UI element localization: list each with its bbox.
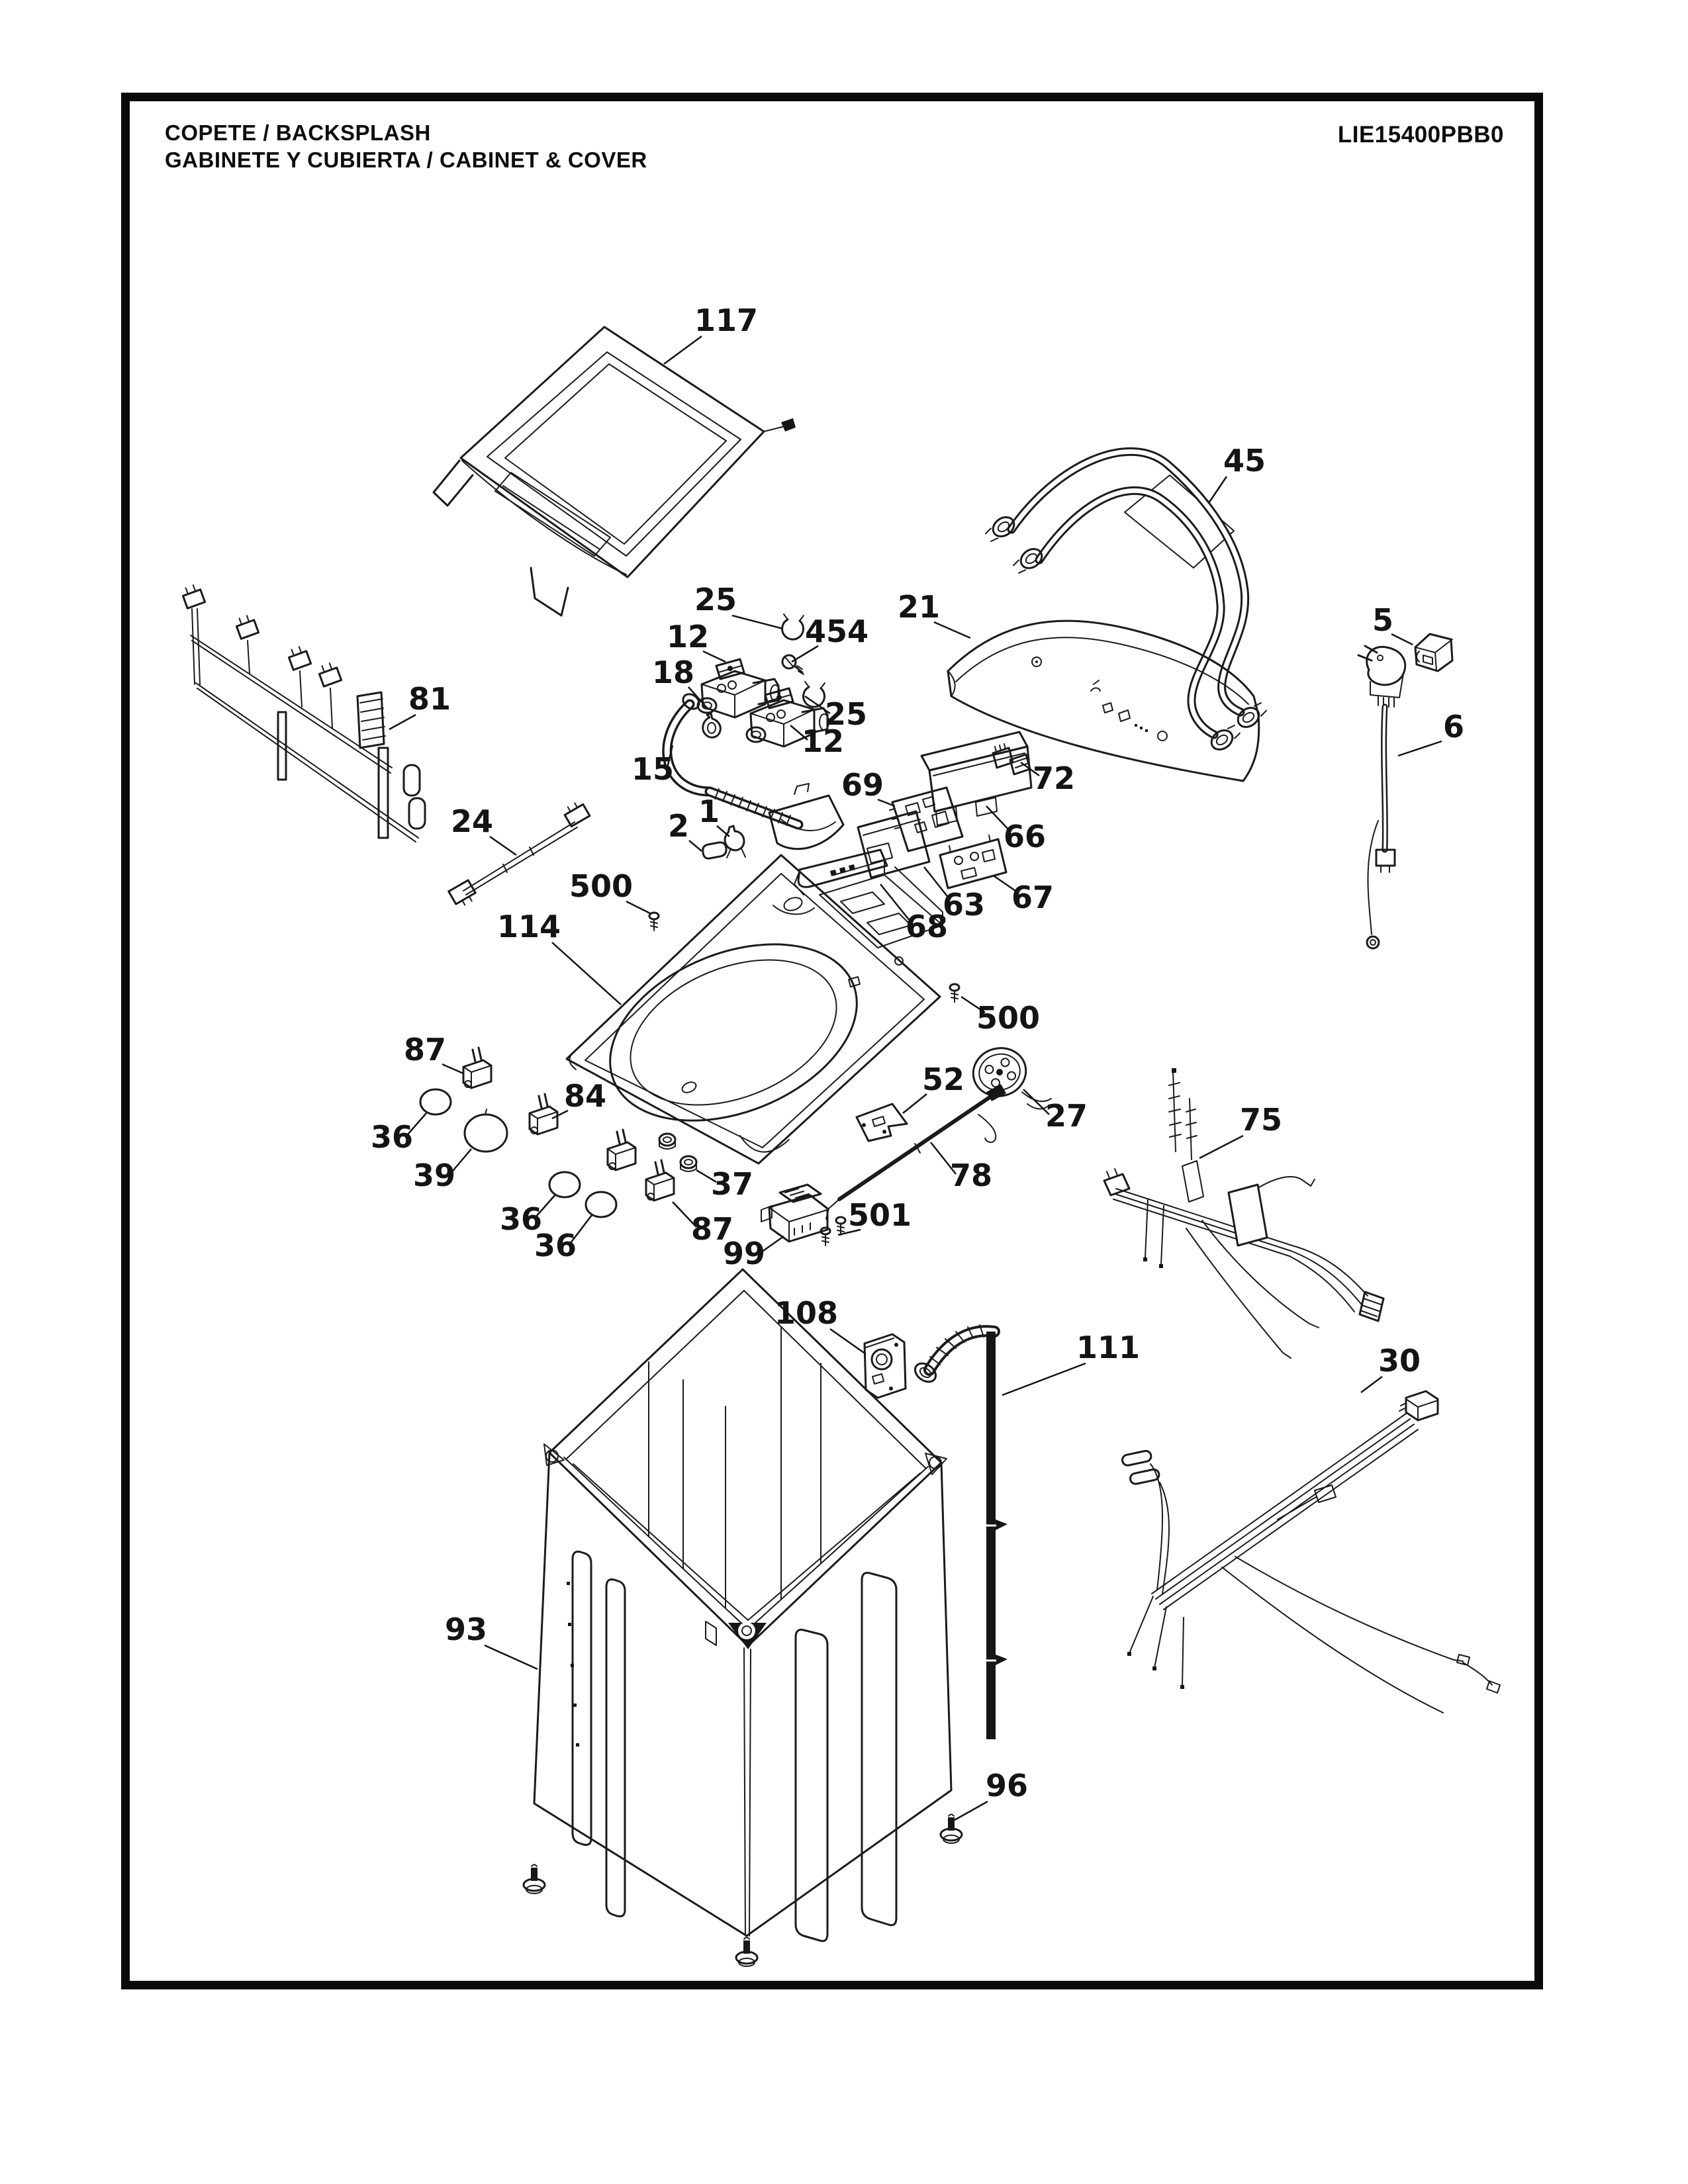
callout-72: 72 [1033,760,1075,796]
callout-12: 12 [802,723,844,759]
callout-1: 1 [698,794,720,829]
callout-454: 454 [805,614,868,649]
callout-36: 36 [371,1119,413,1155]
leader-line-75 [1199,1136,1243,1158]
callout-117: 117 [694,302,758,338]
callout-108: 108 [774,1295,838,1331]
callout-2: 2 [668,808,689,844]
leader-line-96 [955,1801,988,1820]
callout-93: 93 [445,1612,487,1647]
callout-25: 25 [694,582,737,617]
leader-line-111 [1002,1363,1086,1395]
callout-501: 501 [848,1197,912,1233]
part-93-cabinet [534,1269,951,1941]
leader-line-114 [552,942,621,1005]
callout-6: 6 [1443,709,1464,745]
leader-line-6 [1398,741,1442,756]
part-6-power-cord [1358,646,1405,948]
part-switch-mid [608,1130,635,1170]
part-30-harness [1121,1391,1500,1713]
callout-15: 15 [632,751,674,787]
callout-12: 12 [667,619,709,655]
leader-line-2 [689,841,702,851]
callout-81: 81 [408,681,451,717]
part-454-screw [782,655,804,674]
callout-5: 5 [1372,602,1393,638]
leader-line-81 [389,715,416,729]
part-12-valve-a [698,659,780,717]
leader-line-45 [1209,477,1227,503]
callout-21: 21 [898,589,940,625]
part-108-bracket [865,1334,906,1398]
callout-37: 37 [711,1166,753,1202]
leader-line-108 [830,1329,866,1354]
callout-500: 500 [569,868,633,904]
part-27-timer-dial [968,1042,1051,1109]
callout-68: 68 [906,909,948,944]
part-117-lid [434,327,796,615]
part-87-switch-a [463,1048,491,1088]
leader-line-5 [1391,634,1413,645]
callout-39: 39 [413,1158,455,1193]
part-66-bracket [921,732,1031,825]
callout-30: 30 [1378,1343,1421,1379]
callout-78: 78 [950,1158,992,1193]
callout-114: 114 [497,909,561,944]
part-37-bushings [659,1134,696,1171]
diagram-page: COPETE / BACKSPLASH GABINETE Y CUBIERTA … [0,0,1688,2184]
part-99-pressure-switch [761,1185,827,1242]
leader-line-93 [485,1645,538,1669]
part-39-ring [465,1109,507,1152]
part-45-fill-hoses [984,451,1269,753]
callout-52: 52 [922,1062,964,1097]
part-2-pad [703,842,726,858]
callout-36: 36 [534,1228,577,1263]
part-1-clip [725,826,745,858]
callout-67: 67 [1011,880,1054,915]
callout-96: 96 [986,1768,1028,1803]
part-67-power-board [940,835,1006,888]
callout-111: 111 [1076,1330,1140,1365]
callout-84: 84 [564,1078,606,1114]
part-81-harness [181,583,425,842]
part-87-switch-b [646,1160,674,1201]
callout-27: 27 [1045,1098,1088,1134]
leader-line-24 [490,837,516,855]
part-18-clip [703,713,721,737]
part-52-bracket [857,1104,907,1141]
callout-18: 18 [652,655,694,690]
callout-500: 500 [976,1000,1040,1036]
leader-line-30 [1361,1377,1382,1392]
part-5-switch [1415,634,1452,671]
callout-63: 63 [943,887,985,923]
callout-69: 69 [841,767,884,803]
callout-87: 87 [404,1032,446,1068]
part-69-control-board [890,788,962,851]
callout-45: 45 [1223,443,1266,478]
diagram-svg: 1174525124541825121521697266636768114500… [0,0,1688,2184]
leader-line-117 [664,336,702,364]
part-111-drain-hose [912,1325,1008,1739]
callout-66: 66 [1004,819,1046,854]
callout-75: 75 [1240,1102,1282,1138]
callout-24: 24 [451,803,493,839]
callout-99: 99 [723,1236,765,1271]
part-63-housing [858,811,929,878]
part-25-clamp-a [782,614,804,639]
leader-line-25 [732,615,783,629]
part-84-switch [530,1094,557,1134]
